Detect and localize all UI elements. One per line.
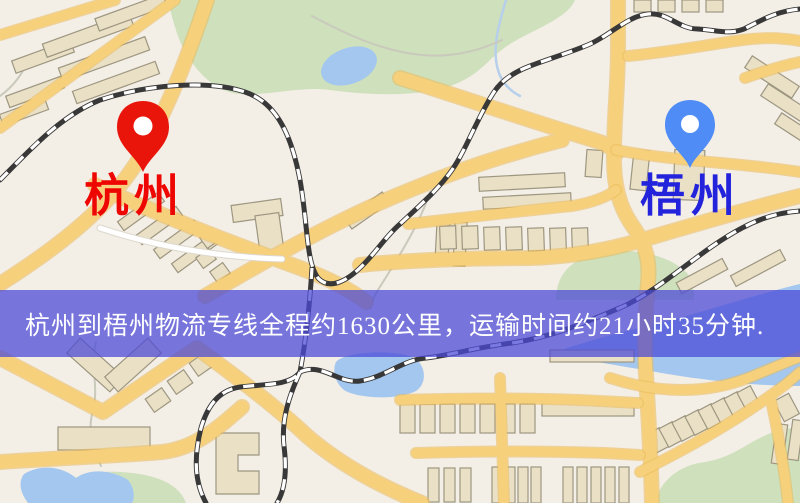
destination-location-pin-icon: [660, 93, 720, 173]
origin-city-label: 杭州: [84, 174, 184, 219]
route-info-banner: 杭州到梧州物流专线全程约1630公里，运输时间约21小时35分钟.: [0, 290, 800, 357]
pin-body: [665, 100, 715, 168]
pin-body: [117, 101, 169, 172]
destination-city-label: 梧州: [640, 174, 740, 219]
pin-hole: [134, 117, 153, 136]
map-canvas: [0, 0, 800, 503]
origin-location-pin-icon: [113, 97, 173, 177]
route-info-text: 杭州到梧州物流专线全程约1630公里，运输时间约21小时35分钟.: [25, 306, 764, 342]
pin-hole: [681, 115, 699, 133]
map-image: 杭州 梧州 杭州到梧州物流专线全程约1630公里，运输时间约21小时35分钟.: [0, 0, 800, 503]
